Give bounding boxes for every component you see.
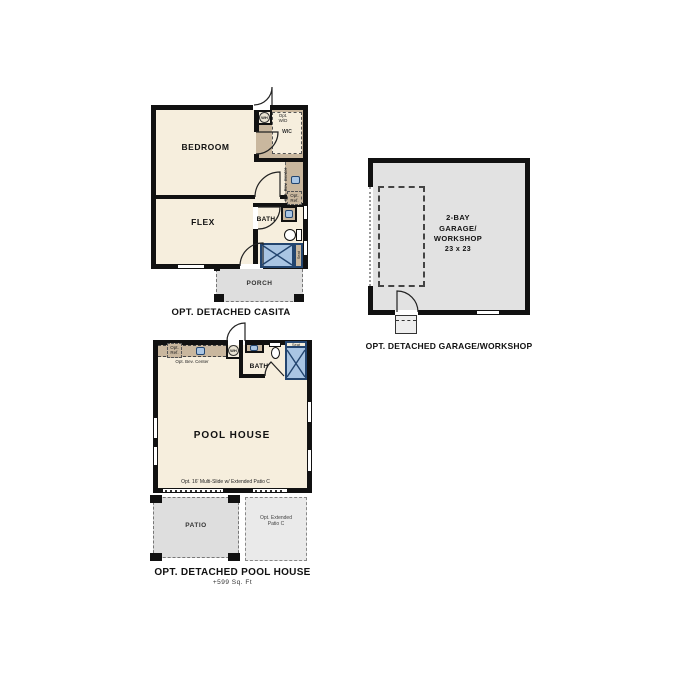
patio-label: PATIO	[158, 522, 234, 529]
wh-label: WH	[230, 348, 237, 353]
patio-post	[150, 495, 162, 503]
water-heater-icon: WH	[259, 112, 270, 123]
wall	[239, 340, 243, 378]
pool-bath-label: BATH	[244, 363, 274, 370]
casita-entry-door-swing	[254, 87, 272, 105]
window	[153, 447, 158, 465]
opt-wd-label: Opt. W/D	[274, 113, 292, 123]
window	[178, 264, 204, 269]
wic-label: WIC	[272, 130, 302, 136]
opt-ref-line2: Ref.	[168, 350, 181, 355]
window	[307, 450, 312, 471]
casita-shower-seat: Seat	[294, 243, 303, 268]
floorplan-sheet: WH Opt. Ref. Seat BEDROOM FLEX BATH WIC …	[0, 0, 687, 687]
pool-bath-sink-icon	[250, 345, 258, 351]
porch-label: PORCH	[216, 280, 303, 287]
patio-post	[228, 495, 240, 503]
wall	[151, 195, 255, 199]
casita-bev-center-label: Opt. Bev. Center	[283, 163, 288, 205]
patio-post	[150, 553, 162, 561]
casita-opt-ref-box: Opt. Ref.	[287, 191, 302, 205]
wall	[253, 229, 258, 269]
multislide-door	[163, 488, 223, 493]
opt-ref-line2: Ref.	[288, 198, 301, 203]
porch-post	[214, 294, 224, 302]
multislide-label: Opt. 16' Multi-Slide w/ Extended Patio C	[148, 480, 303, 486]
multislide-door	[253, 488, 287, 493]
stoop-dashed-line	[396, 320, 416, 321]
door-swing-overlay	[0, 0, 687, 687]
casita-toilet-tank-icon	[296, 229, 302, 241]
window	[303, 241, 308, 255]
casita-bath-sink-icon	[285, 210, 293, 218]
garage-stoop	[395, 315, 417, 334]
pool-opt-ref-box: Opt. Ref.	[167, 343, 182, 358]
casita-shower	[260, 243, 294, 268]
window	[303, 206, 308, 219]
pool-house-label: POOL HOUSE	[158, 430, 306, 441]
seat-label: Seat	[296, 251, 301, 259]
seat-label: Seat	[292, 342, 300, 347]
garage-title: OPT. DETACHED GARAGE/WORKSHOP	[360, 341, 538, 351]
extended-patio-area	[245, 497, 307, 561]
garage-room-label: 2-BAY GARAGE/ WORKSHOP 23 x 23	[398, 213, 518, 255]
wall	[256, 158, 303, 162]
wall	[254, 154, 259, 162]
pool-subtitle: +599 Sq. Ft	[140, 579, 325, 586]
multislide-ticks	[165, 490, 221, 492]
casita-title: OPT. DETACHED CASITA	[146, 307, 316, 318]
pool-bev-center-label: Opt. Bev. Center	[156, 359, 228, 364]
garage-door-dotted-line	[369, 187, 372, 286]
pool-title: OPT. DETACHED POOL HOUSE	[140, 567, 325, 578]
flex-label: FLEX	[158, 217, 248, 227]
porch-post	[294, 294, 304, 302]
water-heater-icon: WH	[228, 345, 239, 356]
patio-post	[228, 553, 240, 561]
casita-toilet-bowl-icon	[284, 229, 296, 241]
multislide-ticks	[255, 490, 285, 492]
porch-post	[214, 266, 220, 271]
bev-center-sink-icon	[291, 176, 300, 184]
pool-toilet-bowl-icon	[271, 347, 280, 359]
pool-bev-sink-icon	[196, 347, 205, 355]
pool-shower-seat: Seat	[285, 341, 307, 348]
window	[307, 402, 312, 422]
casita-bath-label: BATH	[250, 216, 282, 223]
bedroom-label: BEDROOM	[158, 142, 253, 152]
extended-patio-label: Opt. Extended Patio C	[247, 516, 305, 528]
pool-entry-door-swing	[227, 323, 245, 341]
window	[477, 310, 499, 315]
wh-label: WH	[261, 115, 268, 120]
wall	[239, 374, 265, 378]
